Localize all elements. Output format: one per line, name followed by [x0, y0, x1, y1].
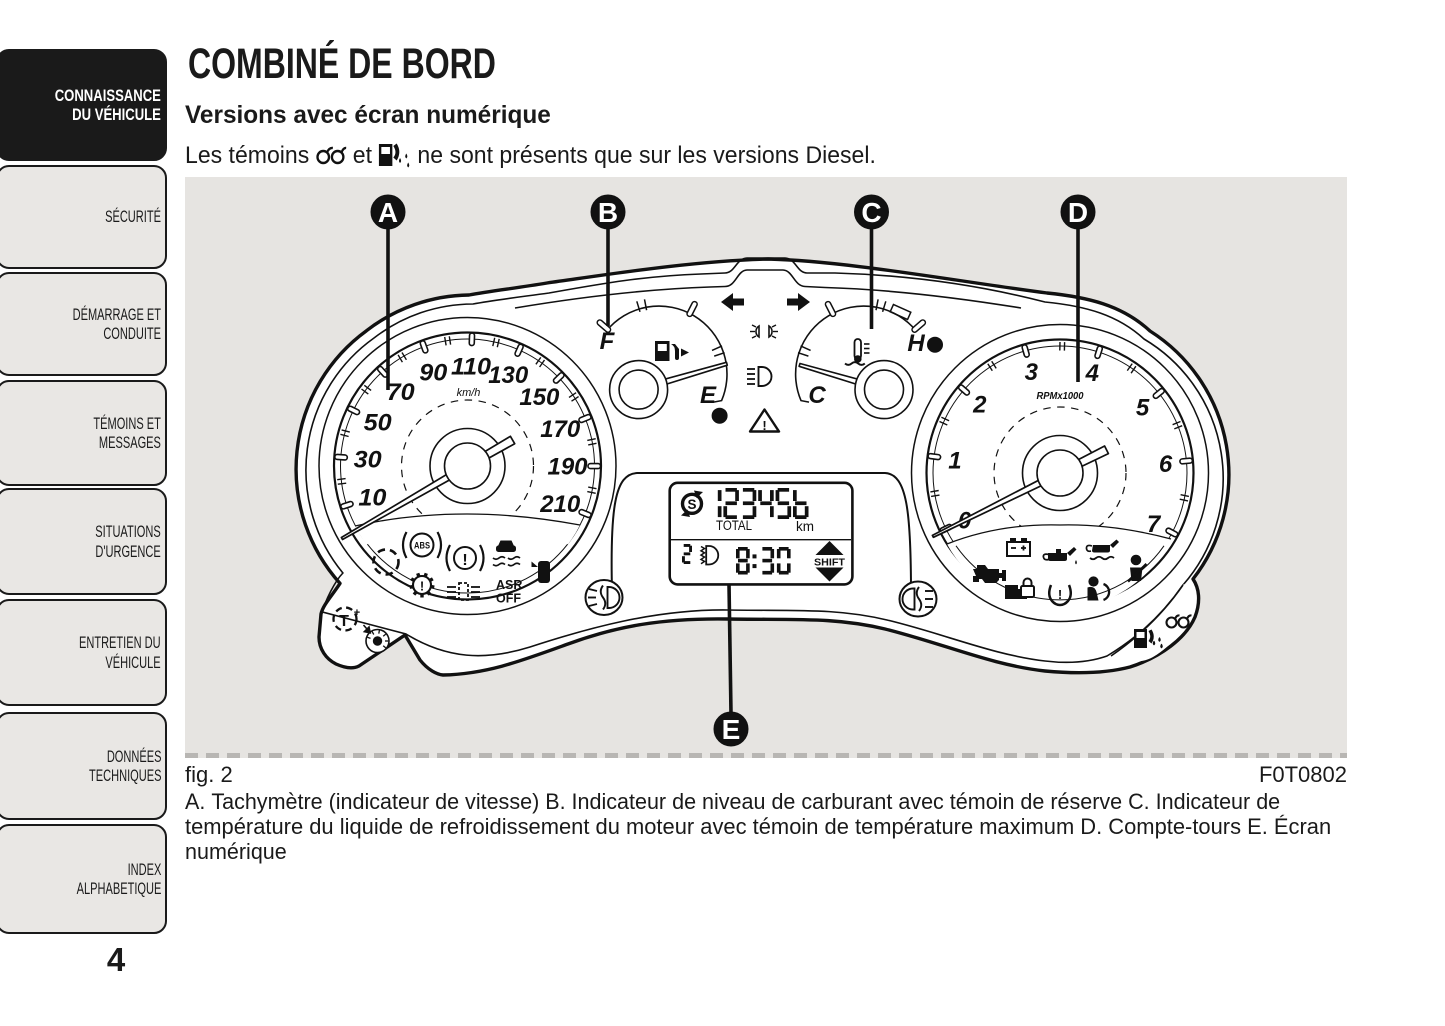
svg-text:F: F — [600, 328, 616, 355]
svg-text:km/h: km/h — [457, 387, 481, 399]
svg-text:3: 3 — [1025, 359, 1039, 386]
svg-text:E: E — [722, 714, 741, 745]
svg-text:210: 210 — [539, 491, 581, 518]
svg-text:T: T — [339, 613, 349, 630]
svg-text:ABS: ABS — [414, 541, 430, 551]
svg-text:RPMx1000: RPMx1000 — [1037, 390, 1084, 402]
svg-text:1: 1 — [948, 447, 961, 474]
svg-text:!: ! — [1058, 587, 1062, 602]
svg-text:!: ! — [762, 418, 766, 433]
svg-text:E: E — [700, 382, 717, 409]
svg-text:170: 170 — [540, 416, 581, 443]
svg-text:H: H — [907, 330, 925, 357]
svg-text:6: 6 — [1159, 451, 1173, 478]
svg-text:+: + — [354, 607, 360, 619]
svg-text:!: ! — [420, 579, 424, 594]
svg-text:ASROFF: ASROFF — [496, 578, 522, 606]
svg-text:4: 4 — [1085, 360, 1099, 387]
svg-text:50: 50 — [364, 410, 393, 437]
svg-text:D: D — [1068, 197, 1088, 228]
svg-text:A: A — [378, 197, 398, 228]
svg-text:10: 10 — [358, 484, 387, 511]
svg-text:190: 190 — [548, 454, 589, 481]
svg-text:30: 30 — [354, 447, 383, 474]
svg-text:SHIFT: SHIFT — [814, 557, 846, 569]
svg-text:B: B — [598, 197, 618, 228]
svg-text:C: C — [808, 382, 826, 409]
svg-text:TOTAL: TOTAL — [716, 518, 752, 533]
svg-text:5: 5 — [1136, 395, 1150, 422]
svg-text:70: 70 — [387, 379, 416, 406]
svg-text:2: 2 — [972, 392, 987, 419]
svg-text:90: 90 — [419, 360, 448, 387]
svg-text:110: 110 — [451, 354, 492, 381]
svg-text:150: 150 — [519, 384, 560, 411]
svg-text:km: km — [796, 519, 814, 534]
svg-text:!: ! — [462, 552, 467, 569]
svg-text:C: C — [861, 197, 881, 228]
svg-text:S: S — [687, 497, 696, 512]
